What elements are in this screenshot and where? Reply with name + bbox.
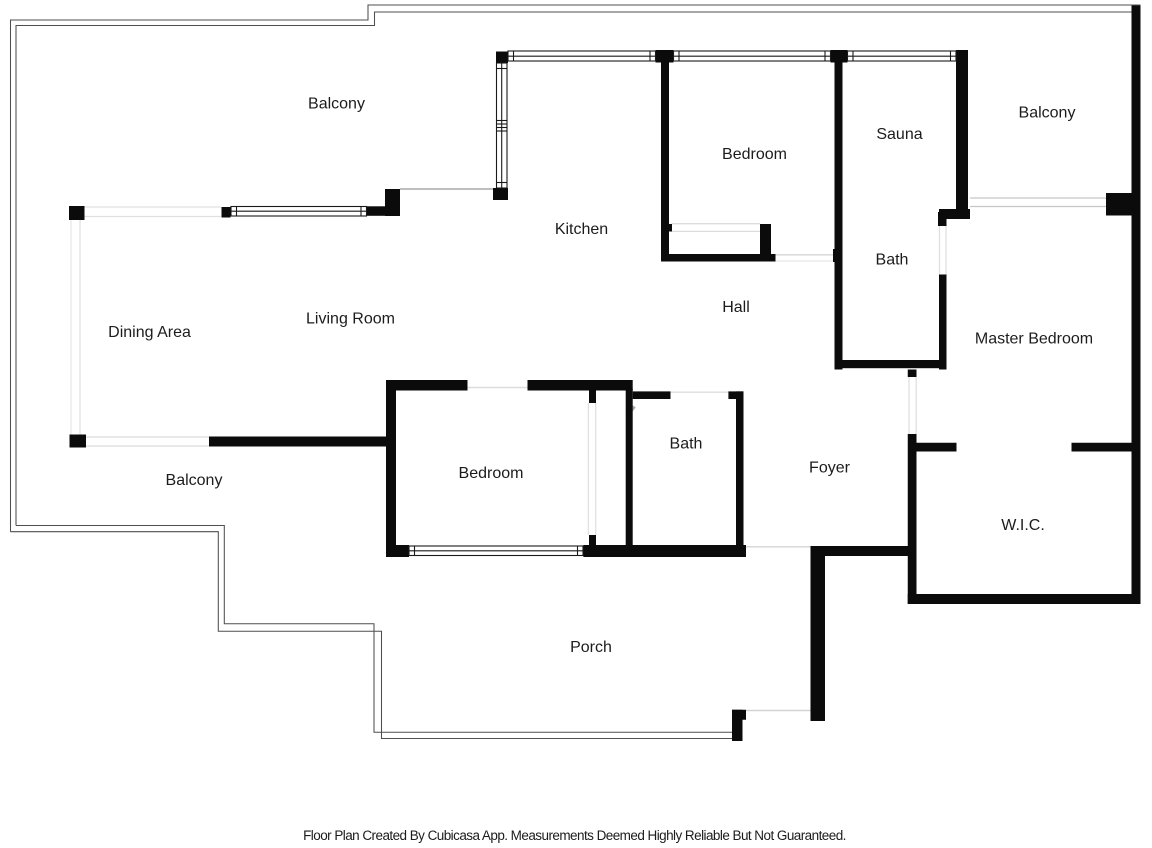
svg-text:Bath: Bath (670, 436, 703, 453)
svg-text:Hall: Hall (722, 299, 750, 316)
svg-text:W.I.C.: W.I.C. (1001, 517, 1045, 534)
svg-text:Floor Plan Created By Cubicasa: Floor Plan Created By Cubicasa App. Meas… (303, 828, 846, 843)
svg-text:Balcony: Balcony (308, 96, 365, 113)
svg-text:Bedroom: Bedroom (459, 465, 524, 482)
svg-text:Master Bedroom: Master Bedroom (975, 331, 1093, 348)
svg-text:Porch: Porch (570, 639, 612, 656)
svg-text:Bath: Bath (876, 252, 909, 269)
svg-text:Sauna: Sauna (876, 126, 922, 143)
svg-text:Balcony: Balcony (166, 472, 223, 489)
svg-text:Living Room: Living Room (306, 311, 395, 328)
svg-text:Kitchen: Kitchen (555, 221, 608, 238)
svg-text:Bedroom: Bedroom (722, 146, 787, 163)
svg-text:Dining Area: Dining Area (108, 324, 191, 341)
svg-text:Balcony: Balcony (1019, 105, 1076, 122)
svg-text:Foyer: Foyer (809, 460, 851, 477)
